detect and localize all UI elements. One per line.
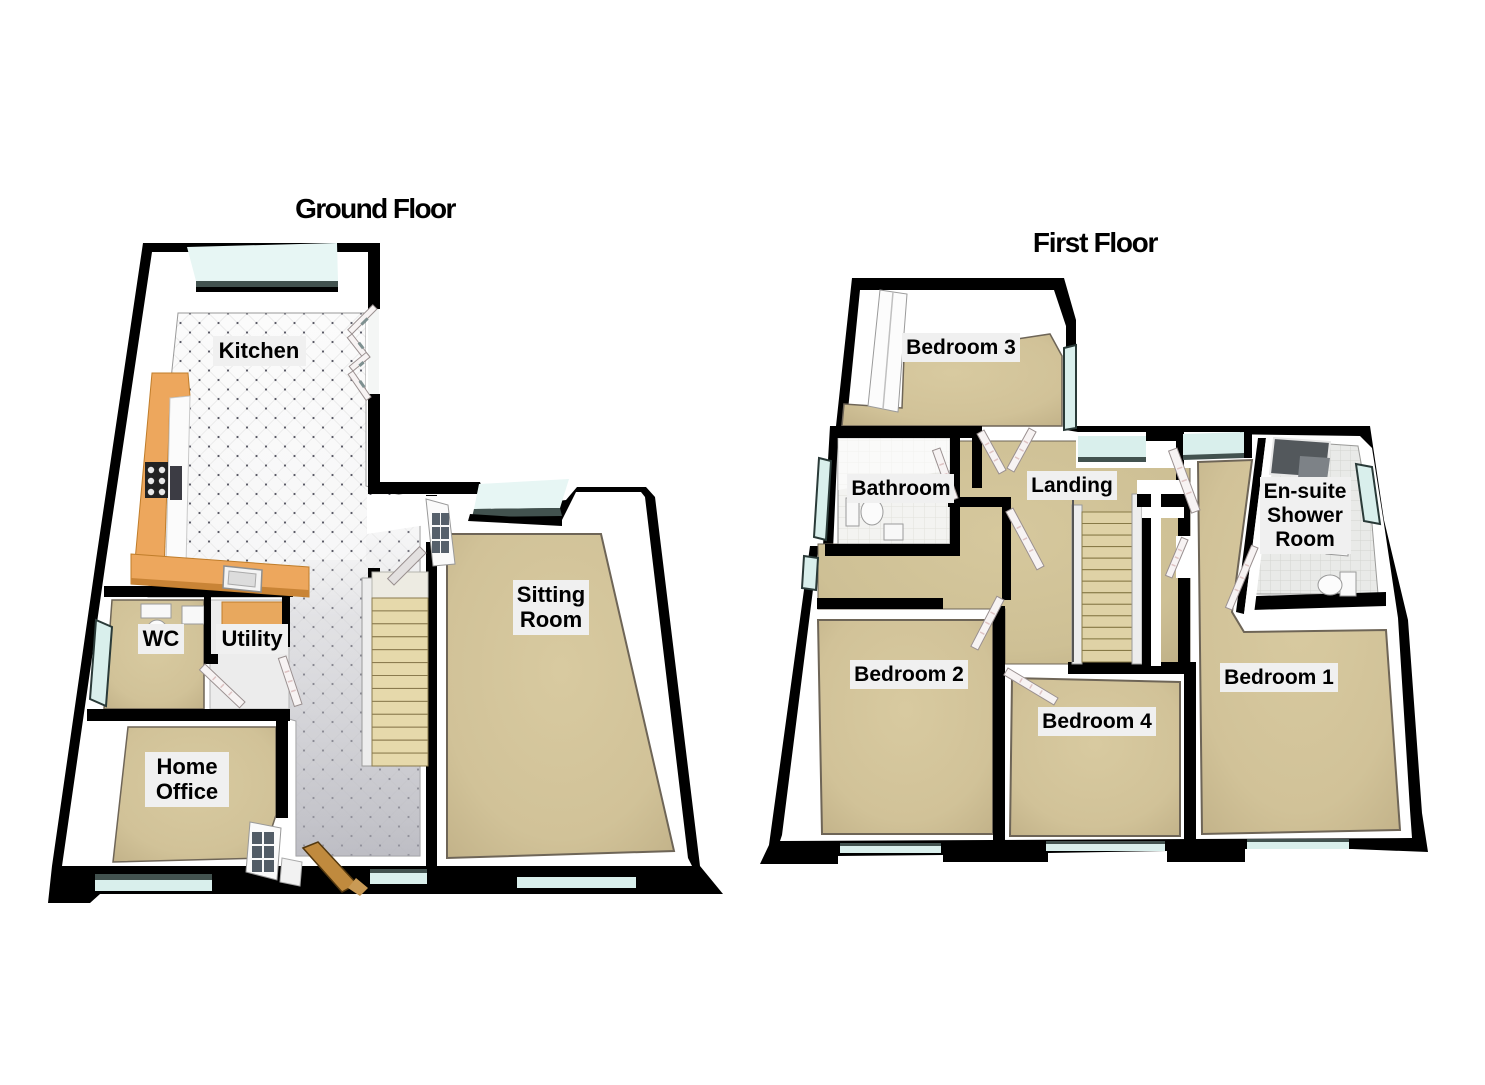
svg-text:Bathroom: Bathroom <box>851 477 950 500</box>
svg-text:Ground Floor: Ground Floor <box>295 193 456 224</box>
svg-text:Utility: Utility <box>221 626 283 651</box>
svg-text:Home: Home <box>156 754 217 779</box>
svg-text:Room: Room <box>520 607 582 632</box>
svg-text:Room: Room <box>1275 528 1335 551</box>
svg-text:Bedroom 1: Bedroom 1 <box>1224 666 1334 689</box>
svg-text:Landing: Landing <box>1031 474 1113 497</box>
svg-text:En-suite: En-suite <box>1264 480 1347 503</box>
svg-text:Bedroom 3: Bedroom 3 <box>906 336 1016 359</box>
svg-text:Kitchen: Kitchen <box>219 338 300 363</box>
svg-text:Office: Office <box>156 779 218 804</box>
svg-text:Shower: Shower <box>1267 504 1343 527</box>
svg-text:Sitting: Sitting <box>517 582 585 607</box>
svg-text:Bedroom 2: Bedroom 2 <box>854 663 964 686</box>
svg-text:First Floor: First Floor <box>1033 227 1159 258</box>
svg-text:Bedroom 4: Bedroom 4 <box>1042 710 1152 733</box>
svg-text:WC: WC <box>143 626 180 651</box>
